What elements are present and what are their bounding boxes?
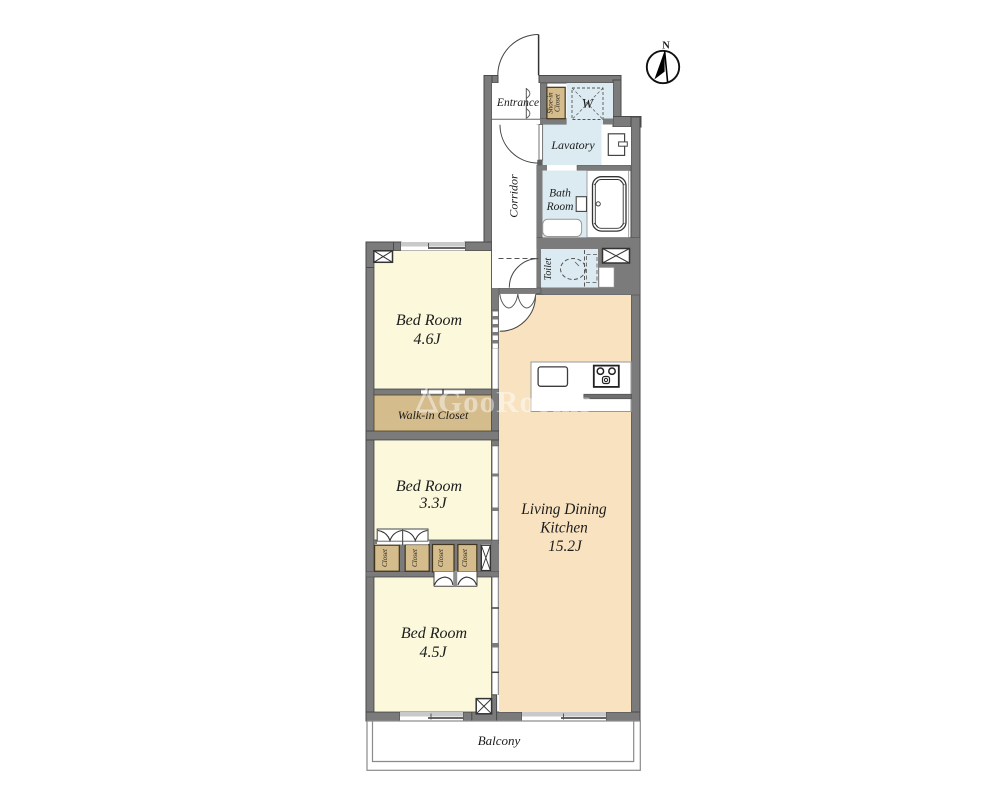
svg-text:15.2J: 15.2J bbox=[548, 538, 583, 555]
svg-text:Walk-in Closet: Walk-in Closet bbox=[398, 408, 469, 422]
svg-text:Toilet: Toilet bbox=[543, 258, 554, 281]
svg-text:Lavatory: Lavatory bbox=[550, 138, 595, 152]
svg-text:Closet: Closet bbox=[437, 548, 445, 567]
svg-text:4.6J: 4.6J bbox=[413, 331, 441, 348]
svg-text:N: N bbox=[662, 41, 670, 52]
svg-text:Bed Room: Bed Room bbox=[401, 625, 467, 642]
svg-text:Closet: Closet bbox=[411, 548, 419, 567]
svg-text:Balcony: Balcony bbox=[478, 733, 521, 748]
svg-text:Closet: Closet bbox=[381, 548, 389, 567]
svg-text:Living Dining: Living Dining bbox=[520, 501, 607, 518]
svg-text:Entrance: Entrance bbox=[496, 97, 539, 109]
svg-text:Closet: Closet bbox=[554, 93, 562, 112]
svg-text:4.5J: 4.5J bbox=[419, 644, 447, 661]
svg-text:Kitchen: Kitchen bbox=[539, 520, 588, 537]
svg-text:Closet: Closet bbox=[461, 548, 469, 567]
svg-text:Bath: Bath bbox=[549, 188, 571, 200]
svg-text:Corridor: Corridor bbox=[507, 174, 521, 218]
svg-text:Bed Room: Bed Room bbox=[396, 312, 462, 329]
svg-text:Room: Room bbox=[546, 201, 574, 213]
svg-text:3.3J: 3.3J bbox=[418, 495, 447, 512]
svg-text:W: W bbox=[582, 96, 595, 111]
svg-text:Bed Room: Bed Room bbox=[396, 478, 462, 495]
